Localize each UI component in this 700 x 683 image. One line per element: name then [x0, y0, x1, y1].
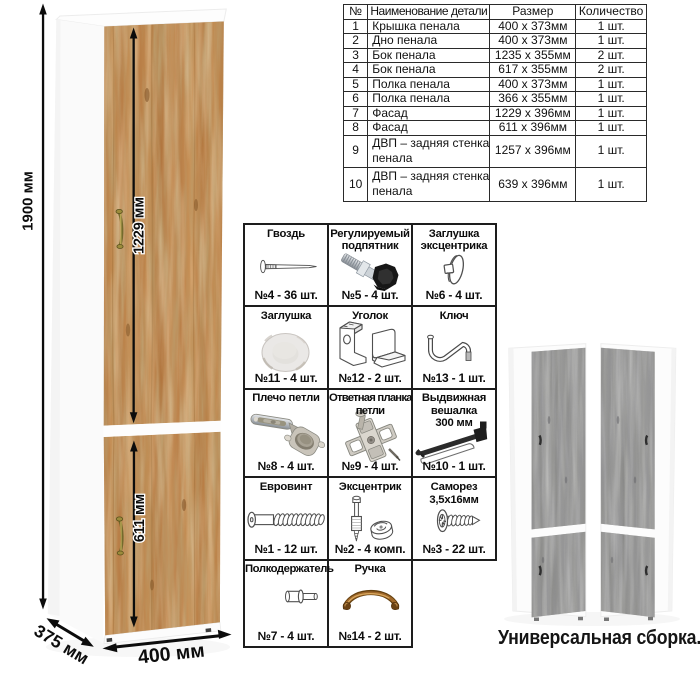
svg-text:1229 мм: 1229 мм — [132, 197, 148, 254]
svg-text:611 мм: 611 мм — [132, 494, 148, 542]
svg-text:1900 мм: 1900 мм — [20, 171, 37, 231]
